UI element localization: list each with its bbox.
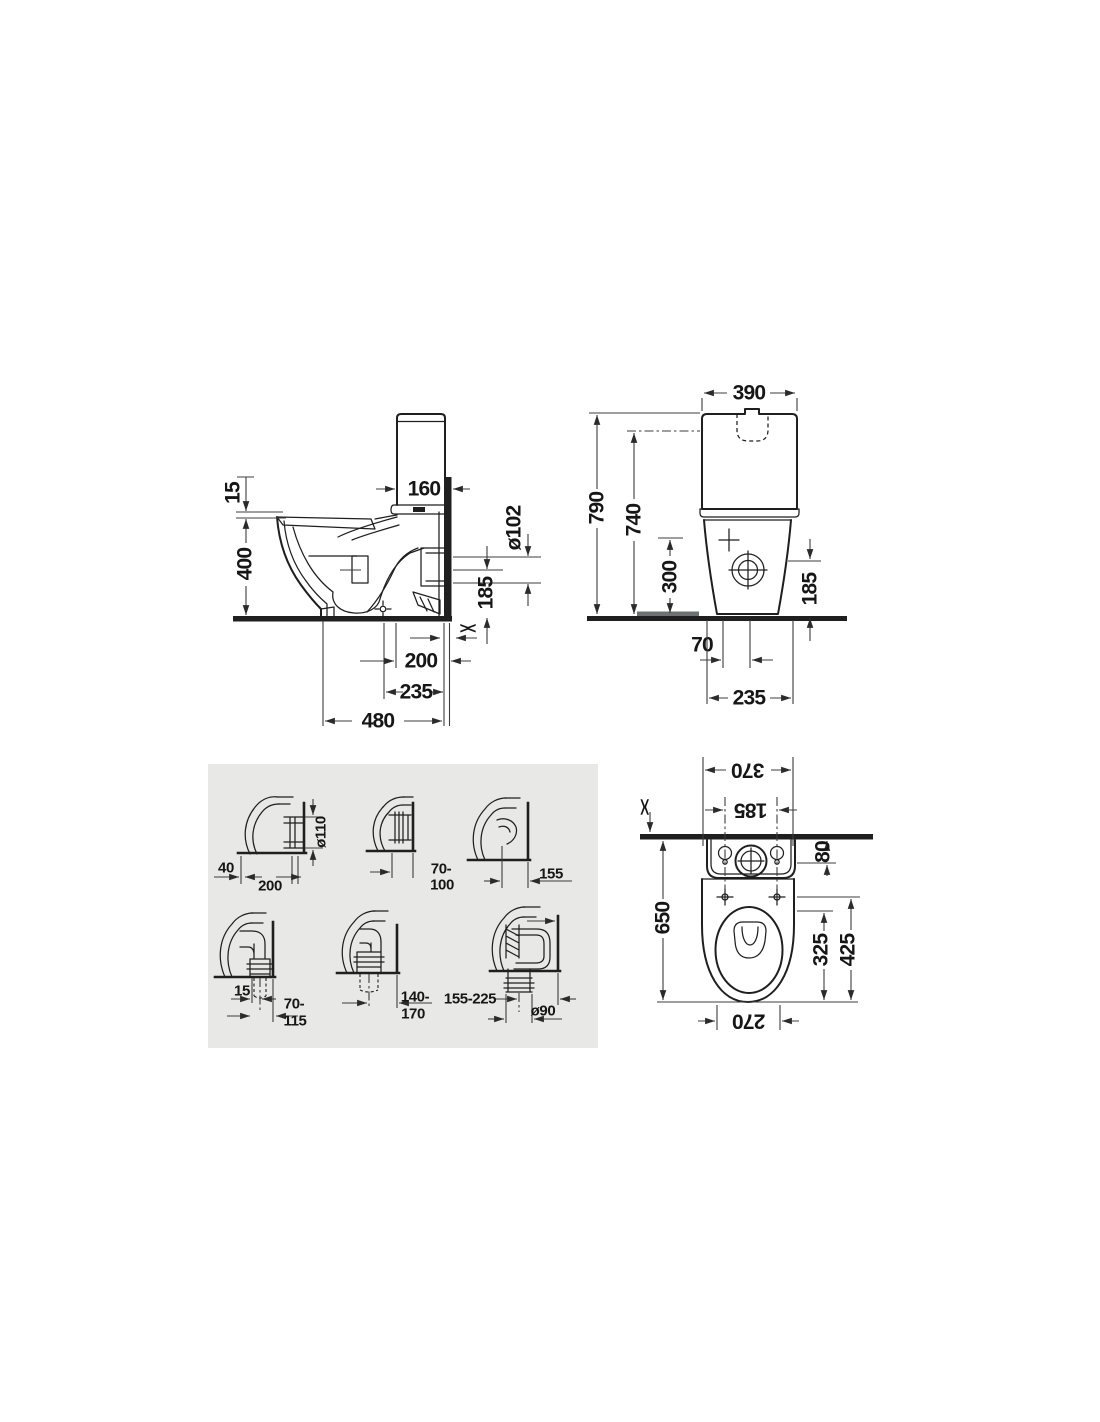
dim-label-range-bottom: 100 [430,877,454,894]
dim-label-total-depth: 480 [362,710,395,733]
dim-label-seat-offset: 15 [222,481,245,504]
wall-line [640,834,873,840]
outlet-variant-vertical-mid: 140- 170 [337,911,432,1023]
drill-cross-mark [375,601,391,617]
dim-label-range-top: 70- [431,861,452,878]
dim-label-tank-overhang: 80 [812,841,835,863]
dim-label-range-top: 140- [401,989,430,1006]
dim-label-total-depth-plan: 650 [652,902,675,935]
dim-label-pipe-diameter: ø90 [531,1003,556,1020]
dim-label-outlet-diameter: ø102 [503,506,526,551]
dim-label-front-width: 270 [733,1010,766,1033]
dim-label-tank-top-height: 740 [623,504,646,537]
dim-label-supply-offset: 70 [691,634,713,657]
outlet-variant-horizontal-short: 155 [468,798,572,888]
dim-label-supply-height: 300 [659,561,682,594]
dim-label-depth-155: 155 [539,866,563,883]
outlet-variant-horizontal-range: 70- 100 [367,797,454,894]
dim-label-range-top: 70- [284,996,305,1013]
dim-label-offset-40: 40 [218,860,234,877]
seat-ring [716,907,783,993]
floor-line [233,616,452,622]
bowl-outline [277,517,321,616]
outlet-variant-vertical-elbow: 15 70- 115 [215,913,307,1030]
dim-label-tank-depth: 160 [408,478,441,501]
flush-button-dashed [737,414,768,441]
dim-label-total-height: 790 [586,492,609,525]
dim-label-tank-width: 390 [733,382,766,405]
seat-section [277,517,375,529]
dim-label-outlet-height: 185 [475,576,498,610]
cistern-outline [702,409,797,509]
fixing-cross [719,529,739,551]
dim-label-range-bottom: 115 [284,1013,307,1030]
floor-strip [637,612,699,617]
outlet-variant-horizontal-wall: ø110 40 200 [214,797,330,895]
front-elevation-view: 390 790 740 300 185 70 [565,373,900,723]
dim-label-outlet-height-front: 185 [799,572,822,606]
outlet-socket [421,548,444,586]
dim-label-range: 155-225 [444,991,496,1008]
side-elevation-view: 15 400 160 ø102 185 >< [210,383,560,738]
plan-view-drawing [640,834,873,1002]
dim-label-back-width: 370 [732,759,765,782]
outlet-variants-panel: ø110 40 200 70- 100 [208,764,598,1048]
dim-label-pipe-diameter: ø110 [313,816,330,848]
dim-label-offset-15: 15 [234,983,250,1000]
side-view-dimensions: 15 400 160 ø102 185 >< [222,477,542,733]
dim-label-depth-200: 200 [258,878,282,895]
dim-label-outlet-center: 200 [405,650,438,673]
dim-label-rim-height: 400 [234,548,257,581]
dim-label-range-bottom: 170 [401,1006,425,1023]
variable-gap-symbol: >< [460,621,476,638]
dim-label-hinge-depth: 425 [837,933,860,967]
plan-view: >< 370 185 80 650 [612,742,910,1082]
trap-section [333,592,380,613]
dim-label-rough-in: 235 [400,681,434,704]
outlet-variant-vertical-trap: 155-225 ø90 [444,907,576,1023]
plan-view-dimensions: >< 370 185 80 650 [636,757,861,1033]
front-view-dimensions: 390 790 740 300 185 70 [586,382,822,710]
toilet-spec-sheet: 15 400 160 ø102 185 >< [0,0,1100,1422]
dim-label-hole-spacing: 185 [734,799,768,822]
dim-label-base-width: 235 [733,687,767,710]
floor-line [587,616,847,621]
dim-label-seat-depth: 325 [810,933,833,967]
